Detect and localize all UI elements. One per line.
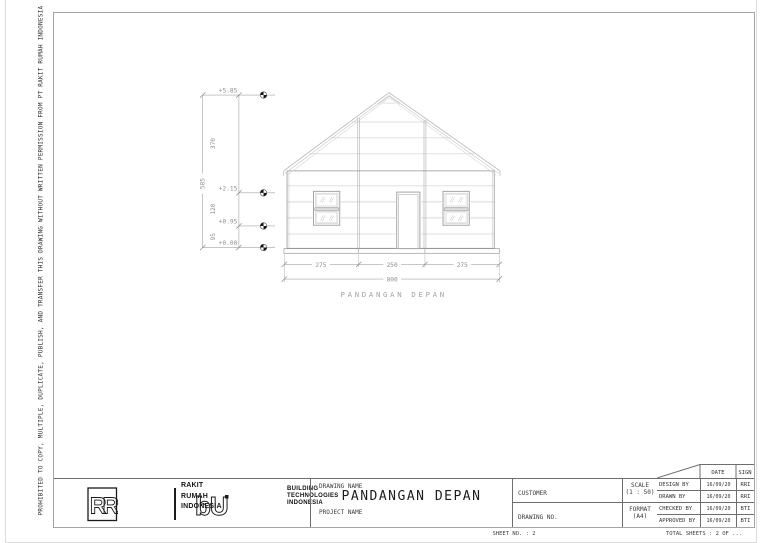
project-name-label: PROJECT NAME <box>319 509 362 516</box>
signoff-sign: RRI <box>736 479 754 491</box>
table-row: APPROVED BY 16/09/20 BTI <box>657 515 754 527</box>
signoff-sign: BTI <box>736 503 754 515</box>
bt-logo: bU <box>194 487 234 522</box>
signoff-date: 16/09/20 <box>700 515 736 527</box>
level-markers <box>260 92 266 251</box>
signoff-role: DRAWN BY <box>657 494 700 500</box>
view-title: PANDANGAN DEPAN <box>341 290 447 299</box>
format-label: FORMAT <box>623 506 657 513</box>
rr-logo: RR <box>87 487 118 522</box>
total-sheets: TOTAL SHEETS : 2 OF ... <box>648 529 760 539</box>
level-label-sill: +0.95 <box>219 219 238 226</box>
table-row: CHECKED BY 16/09/20 BTI <box>657 503 754 515</box>
level-label-window-top: +2.15 <box>219 186 238 193</box>
signoff-date: 16/09/20 <box>700 503 736 515</box>
horizontal-dimensions: 275 250 275 800 <box>282 254 502 283</box>
signoff-table: DESIGN BY 16/09/20 RRI DRAWN BY 16/09/20… <box>657 479 754 527</box>
signoff-role: APPROVED BY <box>657 518 700 524</box>
roof <box>284 93 500 176</box>
customer-cell: CUSTOMER DRAWING NO. <box>512 479 622 527</box>
title-block: RR RAKIT RUMAH INDONESIA bU BUILDING TEC… <box>54 478 754 527</box>
signoff-role: CHECKED BY <box>657 506 700 512</box>
window-left <box>312 190 341 226</box>
drawing-name-value: PANDANGAN DEPAN <box>311 489 512 504</box>
customer-label: CUSTOMER <box>518 490 547 497</box>
copyright-side-note: PROHIBITED TO COPY, MULTIPLE, DUPLICATE,… <box>38 46 45 516</box>
names-cell: DRAWING NAME PANDANGAN DEPAN PROJECT NAM… <box>310 479 512 527</box>
sheet-number: SHEET NO. : 2 <box>454 529 574 539</box>
dim-370: 370 <box>210 138 217 149</box>
logos-cell: RR RAKIT RUMAH INDONESIA bU BUILDING TEC… <box>54 479 310 527</box>
level-label-top: +5.85 <box>219 88 238 95</box>
foundation <box>284 249 500 254</box>
logo-separator <box>174 488 176 520</box>
dim-275-left: 275 <box>315 262 326 269</box>
signoff-role: DESIGN BY <box>657 482 700 488</box>
door <box>396 191 421 249</box>
dim-95: 95 <box>210 233 217 241</box>
scale-cell: SCALE (1 : 50) FORMAT (A4) <box>622 479 657 527</box>
bt-monogram: bU <box>195 491 228 521</box>
scale-value: (1 : 50) <box>623 489 657 496</box>
window-right <box>442 190 471 226</box>
dim-250: 250 <box>387 262 398 269</box>
table-row: DRAWN BY 16/09/20 RRI <box>657 491 754 503</box>
signoff-sign: BTI <box>736 515 754 527</box>
sign-header: SIGN <box>738 470 751 476</box>
dim-585: 585 <box>200 178 207 189</box>
table-row: DESIGN BY 16/09/20 RRI <box>657 479 754 491</box>
level-label-floor: +0.00 <box>219 240 238 247</box>
format-value: (A4) <box>623 513 657 520</box>
dim-275-right: 275 <box>457 262 468 269</box>
drawing-no-label: DRAWING NO. <box>518 514 558 521</box>
signoff-date: 16/09/20 <box>700 479 736 491</box>
rr-monogram: RR <box>90 493 118 519</box>
signoff-sign: RRI <box>736 491 754 503</box>
dim-120: 120 <box>210 203 217 214</box>
signoff-date: 16/09/20 <box>700 491 736 503</box>
dim-800: 800 <box>387 276 398 283</box>
front-elevation-drawing: +5.85 +2.15 +0.95 +0.00 370 120 95 585 2… <box>140 85 565 370</box>
signoff-header: DATE SIGN <box>657 464 754 478</box>
vertical-dimensions: +5.85 +2.15 +0.95 +0.00 370 120 95 585 <box>198 88 275 251</box>
date-header: DATE <box>711 470 724 476</box>
scale-label: SCALE <box>623 482 657 489</box>
